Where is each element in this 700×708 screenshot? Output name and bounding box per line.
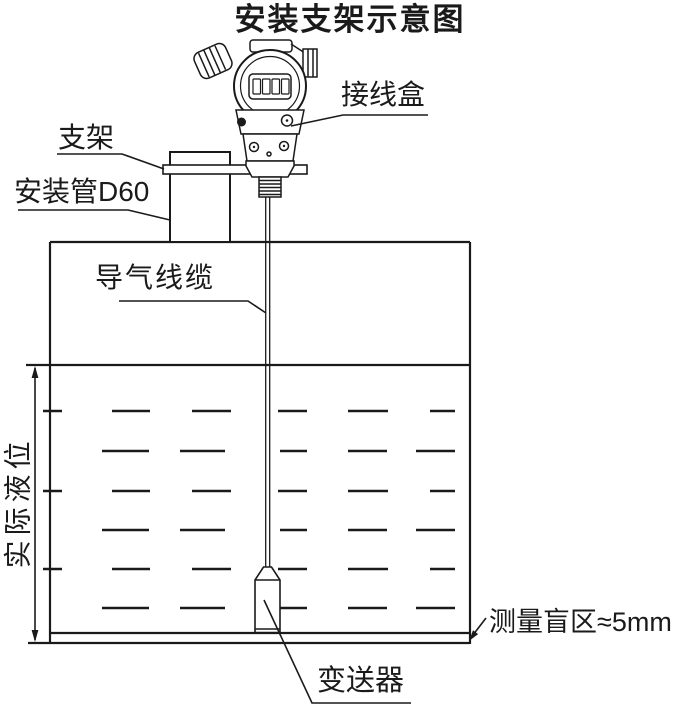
page-title: 安装支架示意图 <box>0 3 700 37</box>
conduit-stub <box>303 49 317 77</box>
air-cable-leader <box>119 301 266 313</box>
tank <box>26 242 470 644</box>
cable-gland-icon <box>192 41 234 80</box>
display-window <box>249 74 291 99</box>
diagram: 安装支架示意图 支架 安装管D60 接线盒 导气线缆 实际液位 测量盲区≈5mm… <box>0 0 700 708</box>
cable-clearance <box>258 368 278 572</box>
junction-box-label: 接线盒 <box>341 80 425 111</box>
blind-zone-arrow <box>469 618 486 641</box>
liquid-dashes <box>43 411 455 608</box>
actual-level-label: 实际液位 <box>4 407 35 597</box>
mounting-pipe-label: 安装管D60 <box>14 177 149 208</box>
bolt-icon <box>237 118 246 127</box>
blind-zone-label: 测量盲区≈5mm <box>489 608 672 638</box>
threaded-nipple <box>259 177 281 197</box>
air-cable-label: 导气线缆 <box>95 263 215 294</box>
housing-flange <box>236 110 304 134</box>
probe <box>255 567 280 633</box>
bracket-label: 支架 <box>58 123 114 154</box>
hex-nut <box>246 161 294 177</box>
junction-box-leader <box>291 115 428 126</box>
mounting-pipe-leader <box>18 210 170 220</box>
transmitter-label: 变送器 <box>317 666 404 698</box>
bracket-leader <box>57 154 164 169</box>
process-yoke <box>243 134 297 161</box>
